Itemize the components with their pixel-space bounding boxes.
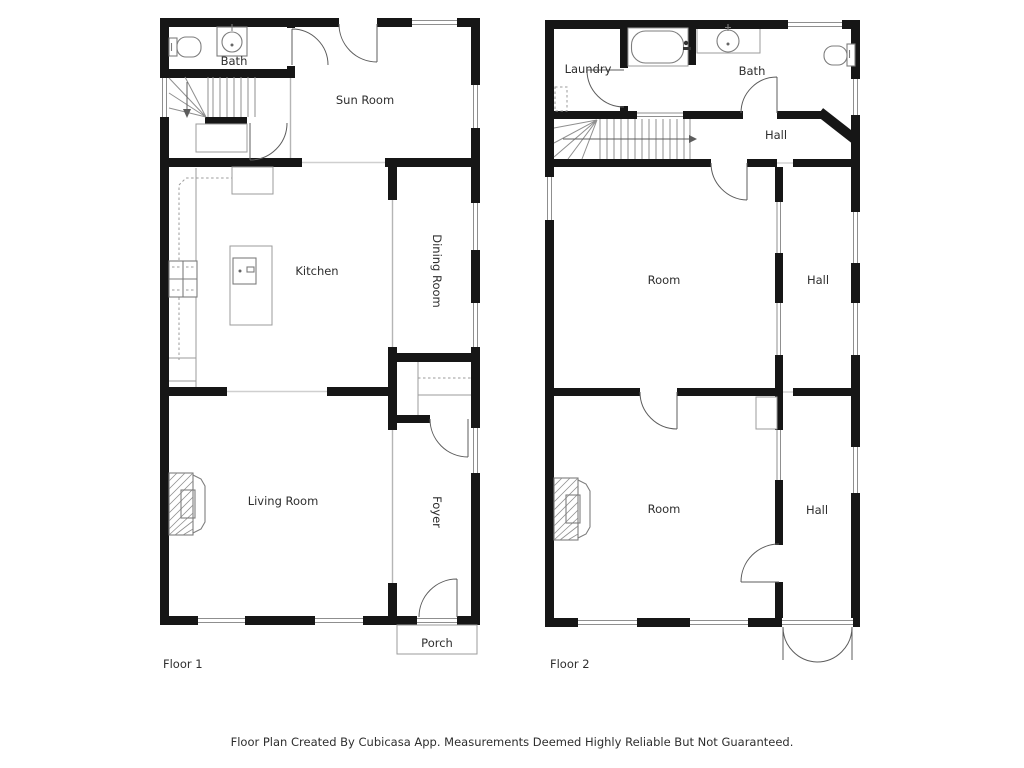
toilet-icon <box>824 44 855 66</box>
stairs-icon <box>169 77 255 152</box>
window-icon <box>851 212 860 263</box>
floor-plan-page: Bath Sun Room Kitchen Dining Room Living… <box>0 0 1024 768</box>
bath-label: Bath <box>739 64 766 78</box>
toilet-icon <box>169 37 201 57</box>
sun-room-label: Sun Room <box>336 93 394 107</box>
door-icon <box>640 392 677 429</box>
french-doors-icon <box>783 627 852 662</box>
bathtub-icon <box>628 28 691 66</box>
stove-icon <box>169 261 197 297</box>
window-icon <box>851 303 860 355</box>
porch-label: Porch <box>421 636 453 650</box>
bath-label: Bath <box>221 54 248 68</box>
floor1-title: Floor 1 <box>163 657 203 671</box>
laundry-label: Laundry <box>565 62 612 76</box>
sink-icon <box>217 24 247 56</box>
closet-shelves <box>418 362 471 415</box>
interior-window-icon <box>775 430 783 480</box>
interior-window-icon <box>775 202 783 253</box>
window-icon <box>471 303 480 347</box>
door-icon <box>287 28 328 66</box>
door-icon <box>339 24 377 62</box>
window-icon <box>788 20 842 29</box>
window-icon <box>471 203 480 250</box>
fireplace-icon <box>554 478 590 540</box>
door-icon <box>741 77 777 113</box>
door-icon <box>711 163 747 200</box>
french-door-threshold <box>782 618 853 627</box>
window-icon <box>851 447 860 493</box>
closet-icon <box>756 397 777 429</box>
floor2-doors <box>587 68 852 662</box>
kitchen-label: Kitchen <box>295 264 338 278</box>
disclaimer-text: Floor Plan Created By Cubicasa App. Meas… <box>231 735 794 749</box>
window-icon <box>160 78 169 117</box>
living-room-label: Living Room <box>248 494 319 508</box>
window-icon <box>315 616 363 625</box>
door-icon <box>430 419 468 457</box>
window-icon <box>545 177 554 220</box>
floor2-plan: Laundry Bath Hall Room Hall Room Hall Fl… <box>545 20 860 671</box>
front-door-icon <box>419 579 457 617</box>
window-icon <box>851 79 860 115</box>
foyer-label: Foyer <box>430 496 444 528</box>
refrigerator-icon <box>232 167 273 194</box>
hall-bottom-label: Hall <box>806 503 828 517</box>
room-mid-label: Room <box>648 273 681 287</box>
room-bottom-label: Room <box>648 502 681 516</box>
window-icon <box>198 616 245 625</box>
window-icon <box>578 618 637 627</box>
floor2-title: Floor 2 <box>550 657 590 671</box>
floor1-plan: Bath Sun Room Kitchen Dining Room Living… <box>160 18 480 671</box>
door-icon <box>741 544 779 582</box>
stair-rail-opening <box>637 111 683 119</box>
floor2-walls <box>545 20 860 627</box>
door-icon <box>250 123 287 160</box>
window-icon <box>471 85 480 128</box>
fireplace-icon <box>169 473 205 535</box>
washer-space-icon <box>555 87 567 111</box>
front-door-threshold <box>417 616 457 625</box>
window-icon <box>471 428 480 473</box>
hall-top-label: Hall <box>765 128 787 142</box>
interior-window-icon <box>775 303 783 355</box>
kitchen-island-icon <box>230 246 272 325</box>
stairs-icon <box>554 119 697 159</box>
floor1-doors <box>250 24 468 617</box>
dining-room-label: Dining Room <box>430 234 444 308</box>
hall-mid-label: Hall <box>807 273 829 287</box>
window-icon <box>690 618 748 627</box>
understair-closet <box>196 124 247 152</box>
window-icon <box>412 18 457 27</box>
floor-plan-drawing: Bath Sun Room Kitchen Dining Room Living… <box>0 0 1024 768</box>
